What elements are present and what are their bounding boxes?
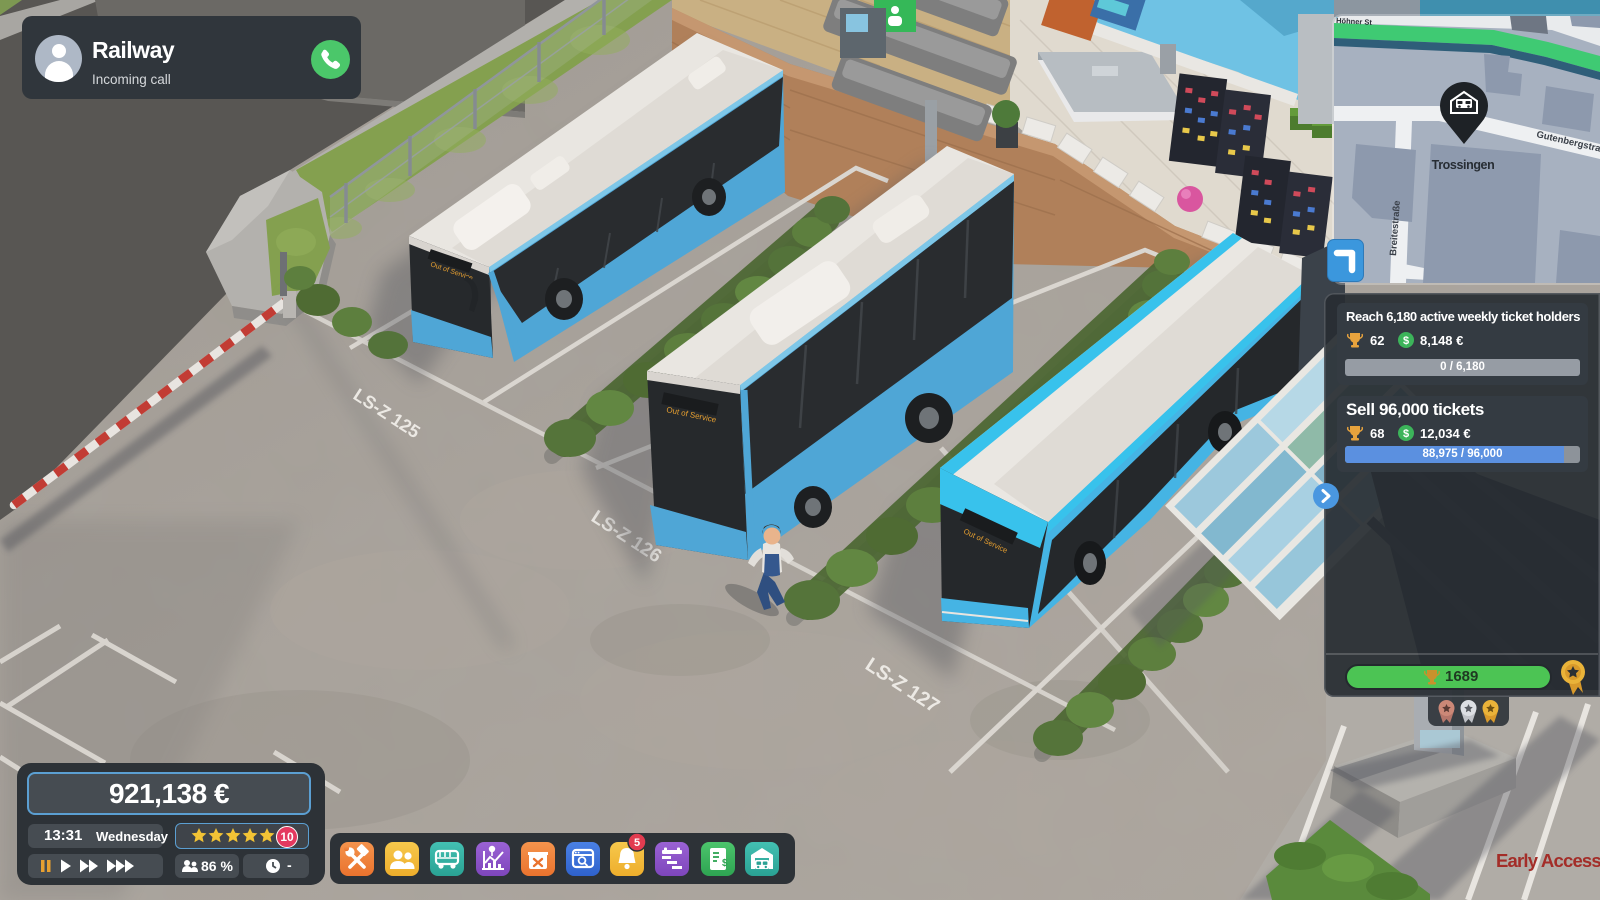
svg-text:Höhner St: Höhner St <box>1336 16 1373 27</box>
svg-text:12,034 €: 12,034 € <box>1420 426 1471 441</box>
svg-text:$: $ <box>722 858 728 869</box>
svg-text:$: $ <box>1403 335 1409 347</box>
svg-text:$: $ <box>1403 428 1409 440</box>
svg-text:62: 62 <box>1370 333 1384 348</box>
svg-text:8,148 €: 8,148 € <box>1420 333 1463 348</box>
svg-text:68: 68 <box>1370 426 1384 441</box>
svg-text:Trossingen: Trossingen <box>1432 158 1495 172</box>
svg-text:5: 5 <box>634 837 640 849</box>
